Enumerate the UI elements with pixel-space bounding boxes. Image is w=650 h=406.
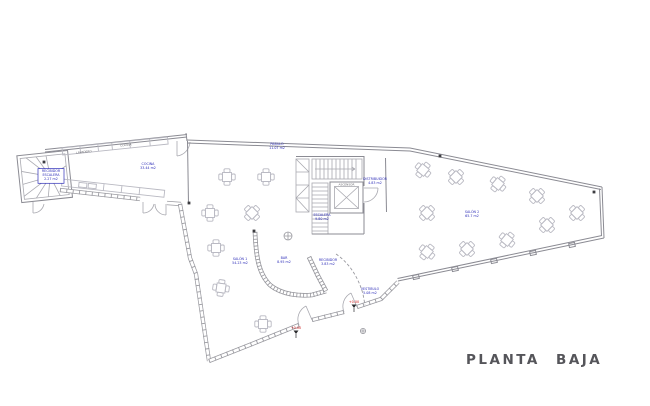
level-mark: +0.00 — [291, 326, 301, 338]
dining-table — [202, 205, 218, 221]
level-marks-layer: +0.00+0.00 — [291, 300, 359, 338]
stair-block-door-arc — [33, 202, 44, 213]
chair-icon — [244, 214, 251, 221]
dining-table — [240, 201, 263, 224]
chair-icon — [419, 254, 426, 261]
chair-icon — [224, 182, 230, 186]
chair-icon — [548, 226, 555, 233]
fixture-label: LAVADERO — [76, 149, 93, 155]
chair-icon — [224, 169, 230, 173]
sink-icon — [79, 182, 87, 187]
dining-table — [258, 169, 274, 185]
chair-icon — [419, 244, 426, 251]
distribuidor-door-arc — [364, 188, 378, 202]
level-flag-icon — [352, 305, 357, 309]
chair-icon — [459, 250, 466, 257]
chair-icon — [499, 176, 506, 183]
chair-icon — [258, 174, 262, 180]
chair-icon — [207, 205, 213, 209]
chair-icon — [419, 214, 426, 221]
chair-icon — [415, 162, 422, 169]
dining-table — [565, 201, 588, 224]
room-label: RECIBIDOR3.83 m2 — [319, 258, 338, 266]
chair-icon — [419, 205, 426, 212]
chair-icon — [424, 162, 431, 169]
svg-text:ESCALERA9.80 m2: ESCALERA9.80 m2 — [313, 213, 331, 221]
columns-layer — [43, 155, 596, 334]
room-label: SALÓN 154.23 m2 — [232, 256, 248, 265]
column-marker — [253, 230, 256, 233]
chair-icon — [428, 244, 435, 251]
dining-table — [455, 237, 478, 260]
dining-table — [219, 169, 235, 185]
chair-icon — [253, 214, 260, 221]
svg-text:+0.00: +0.00 — [291, 326, 301, 330]
chair-icon — [215, 210, 219, 216]
room-label: BAR8.95 m2 — [277, 256, 291, 264]
chair-icon — [538, 188, 545, 195]
dining-table — [415, 201, 438, 224]
chair-icon — [260, 316, 266, 320]
chair-icon — [448, 178, 455, 185]
dining-table — [411, 158, 434, 181]
wing-bottom-wall — [60, 190, 181, 215]
column-marker — [43, 161, 46, 164]
dining-table — [535, 213, 558, 236]
dining-table — [415, 240, 438, 263]
chair-icon — [213, 240, 219, 244]
chair-icon — [457, 178, 464, 185]
chair-icon — [578, 205, 585, 212]
chair-icon — [253, 205, 260, 212]
chair-icon — [490, 176, 497, 183]
svg-text:BAR8.95 m2: BAR8.95 m2 — [277, 256, 291, 264]
svg-text:+0.00: +0.00 — [349, 300, 359, 304]
dining-table — [525, 184, 548, 207]
stair-elevator-core — [296, 156, 387, 234]
dining-table — [255, 316, 271, 332]
chair-icon — [539, 217, 546, 224]
entrance-doors — [298, 293, 357, 325]
dining-table — [444, 165, 467, 188]
chair-icon — [499, 232, 506, 239]
dining-table — [486, 172, 509, 195]
chair-icon — [271, 174, 275, 180]
chair-icon — [219, 279, 225, 283]
chair-icon — [425, 171, 432, 178]
chair-icon — [217, 292, 223, 296]
svg-text:DISTRIBUIDOR4.83 m2: DISTRIBUIDOR4.83 m2 — [363, 177, 388, 185]
chair-icon — [539, 226, 546, 233]
svg-text:SALÓN 154.23 m2: SALÓN 154.23 m2 — [232, 256, 248, 265]
chair-icon — [263, 169, 269, 173]
chair-icon — [202, 210, 206, 216]
dining-table — [212, 279, 231, 298]
room-label: PASILLO11.07 m2 — [269, 142, 285, 150]
chair-icon — [529, 197, 536, 204]
terrace-door-arcs — [143, 202, 166, 215]
column-marker — [593, 191, 596, 194]
chair-icon — [260, 329, 266, 333]
chair-icon — [263, 182, 269, 186]
chair-icon — [538, 197, 545, 204]
svg-text:SALÓN 265.7 m2: SALÓN 265.7 m2 — [465, 209, 479, 218]
entrance-door-arc-1 — [298, 306, 312, 325]
chair-icon — [509, 241, 516, 248]
column-marker — [188, 202, 191, 205]
svg-text:RECIBIDOR3.83 m2: RECIBIDOR3.83 m2 — [319, 258, 338, 266]
level-flag-icon — [294, 331, 299, 335]
chair-icon — [232, 174, 236, 180]
chair-icon — [428, 205, 435, 212]
chair-icon — [569, 214, 576, 221]
room-label: ESCALERA9.80 m2 — [313, 213, 331, 221]
chair-icon — [508, 232, 515, 239]
chair-icon — [415, 172, 422, 179]
chair-icon — [448, 169, 455, 176]
chair-icon — [499, 242, 506, 249]
chair-icon — [219, 174, 223, 180]
room-label: SALÓN 265.7 m2 — [465, 209, 479, 218]
chair-icon — [548, 217, 555, 224]
chair-icon — [578, 214, 585, 221]
drain-marker — [360, 328, 365, 333]
fixture-label: ASCENSOR — [339, 182, 355, 186]
svg-text:COCINA33.44 m2: COCINA33.44 m2 — [140, 162, 156, 170]
kitchen-wing — [45, 133, 190, 197]
chair-icon — [207, 218, 213, 222]
floor-plan-page: RECIBIDORESCALERA2.27 m2COCINA33.44 m2PA… — [0, 0, 650, 406]
drain-marker — [284, 232, 292, 240]
chair-icon — [213, 253, 219, 257]
plan-title: PLANTA BAJA — [466, 352, 602, 368]
room-label: COCINA33.44 m2 — [140, 162, 156, 170]
room-label: RECIBIDORESCALERA2.27 m2 — [38, 169, 64, 184]
chair-icon — [490, 186, 497, 193]
floor-plan-drawing: RECIBIDORESCALERA2.27 m2COCINA33.44 m2PA… — [0, 0, 650, 406]
chair-icon — [221, 245, 225, 251]
chair-icon — [212, 284, 216, 290]
room-label: VESTIBULO5.08 m2 — [361, 287, 380, 295]
chair-icon — [569, 205, 576, 212]
tables-layer — [202, 158, 589, 332]
building-outline — [180, 140, 604, 361]
curved-partition-dashed — [336, 254, 365, 305]
chair-icon — [225, 286, 229, 292]
dining-table — [495, 228, 518, 251]
chair-icon — [459, 241, 466, 248]
chair-icon — [255, 321, 259, 327]
chair-icon — [500, 185, 507, 192]
svg-text:VESTIBULO5.08 m2: VESTIBULO5.08 m2 — [361, 287, 380, 295]
chair-icon — [529, 188, 536, 195]
chair-icon — [468, 241, 475, 248]
chair-icon — [428, 214, 435, 221]
chair-icon — [429, 253, 436, 260]
chair-icon — [268, 321, 272, 327]
svg-text:PASILLO11.07 m2: PASILLO11.07 m2 — [269, 142, 285, 150]
column-marker — [439, 155, 442, 158]
chair-icon — [208, 245, 212, 251]
dining-table — [208, 240, 224, 256]
room-label: DISTRIBUIDOR4.83 m2 — [363, 177, 388, 185]
stair-direction-arrow — [315, 167, 355, 171]
chair-icon — [457, 169, 464, 176]
chair-icon — [244, 205, 251, 212]
chair-icon — [468, 250, 475, 257]
